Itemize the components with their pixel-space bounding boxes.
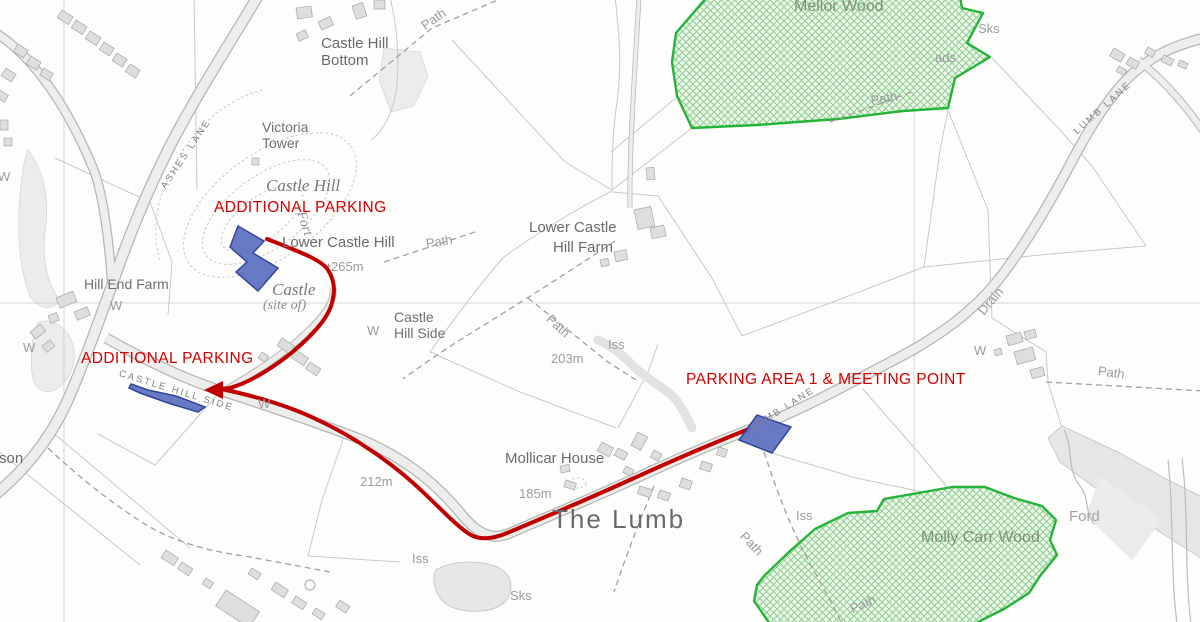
label-iss-3: Iss <box>796 509 813 524</box>
label-path-lumb: Path <box>737 529 766 558</box>
label-castle-hill-side: Castle Hill Side <box>394 310 445 341</box>
label-path-east: Path <box>1097 364 1126 382</box>
label-path-mid: Path <box>425 233 454 252</box>
label-castle-hill-side-road: CASTLE HILL SIDE <box>117 369 234 414</box>
label-hill-end-farm: Hill End Farm <box>84 277 169 293</box>
label-well-3: W <box>110 299 122 314</box>
label-sks-bottom: Sks <box>510 589 532 604</box>
label-castle-hill-bottom: Castle Hill Bottom <box>321 36 389 70</box>
label-lumb-lane-upper: LUMB LANE <box>1072 80 1134 137</box>
label-lumb-lane-lower: LUMB LANE <box>749 386 817 434</box>
label-path-mellor: Path <box>870 89 899 108</box>
annotation-parking-area-1-meeting-point: PARKING AREA 1 & MEETING POINT <box>686 371 966 388</box>
label-path-top: Path <box>419 6 449 33</box>
label-mellor-wood: Mellor Wood <box>794 0 884 16</box>
label-castle-site: Castle <box>272 280 315 299</box>
label-lower-castle-hill-farm-line1: Lower Castle <box>529 220 617 237</box>
label-the-lumb: The Lumb <box>552 505 685 534</box>
label-ashes-lane: ASHES LANE <box>160 118 214 192</box>
label-height-185m: 185m <box>519 487 552 502</box>
label-iss-1: Iss <box>608 338 625 353</box>
map-canvas: Castle Hill BottomPathVictoria TowerCast… <box>0 0 1200 622</box>
label-well-2: W <box>23 341 35 356</box>
label-ads-partial: ads <box>935 51 956 66</box>
label-height-212m: 212m <box>360 475 393 490</box>
label-height-265m: 265m <box>331 260 364 275</box>
label-ford: Ford <box>1069 509 1100 526</box>
label-castle-hill: Castle Hill <box>266 176 340 195</box>
label-molly-carr-wood: Molly Carr Wood <box>921 529 1040 547</box>
label-height-203m: 203m <box>551 352 584 367</box>
label-victoria-tower: Victoria Tower <box>262 120 308 151</box>
label-iss-2: Iss <box>412 552 429 567</box>
label-well-6: W <box>974 344 986 359</box>
label-rson-partial: rson <box>0 451 23 468</box>
map-labels-layer: Castle Hill BottomPathVictoria TowerCast… <box>0 0 1200 622</box>
label-lower-castle-hill-farm-line2: Hill Farm <box>553 240 613 257</box>
annotation-additional-parking-upper: ADDITIONAL PARKING <box>214 199 387 216</box>
label-castle-site-of: (site of) <box>263 298 306 314</box>
label-drain: Drain <box>976 285 1007 318</box>
label-mollicar-house: Mollicar House <box>505 451 604 468</box>
label-path-molly: Path <box>848 592 878 616</box>
label-path-iss: Path <box>543 312 572 341</box>
label-well-1: W <box>0 170 10 185</box>
label-sks-top: Sks <box>978 22 1000 37</box>
label-well-4: W <box>367 324 379 339</box>
label-well-5: W <box>258 397 270 412</box>
annotation-additional-parking-lower: ADDITIONAL PARKING <box>81 350 254 367</box>
label-lower-castle-hill: Lower Castle Hill <box>282 235 395 252</box>
